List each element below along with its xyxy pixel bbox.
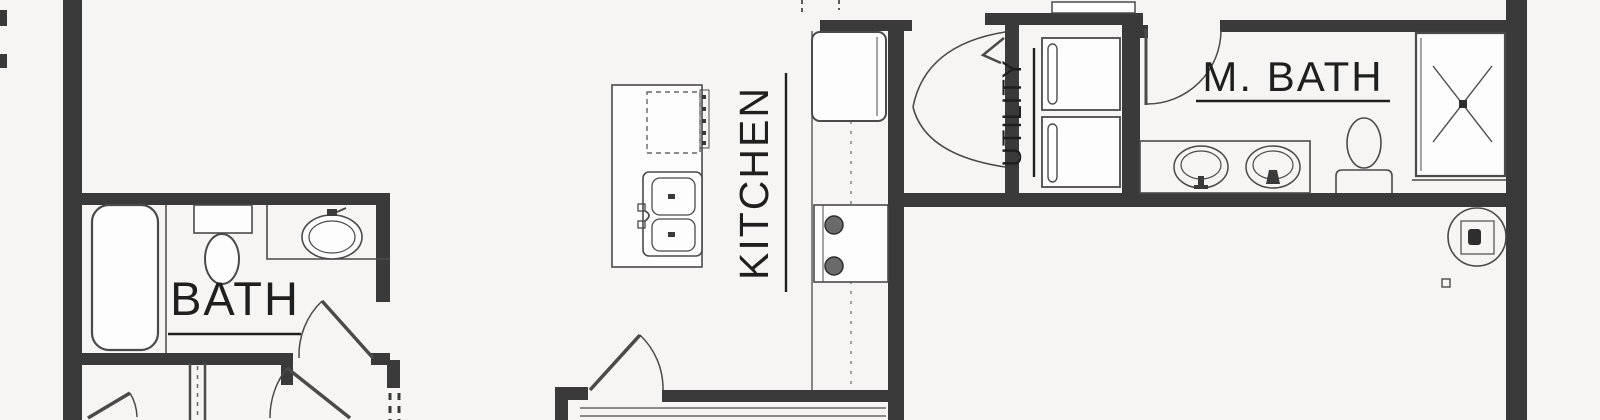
burner-icon: [825, 216, 843, 234]
double-sink: [638, 172, 702, 256]
wall-kitchen-right: [888, 20, 904, 420]
room-label-kitchen: KITCHEN: [734, 73, 780, 293]
wall-left-outer: [63, 0, 82, 420]
bathtub: [92, 205, 158, 350]
utility-fixtures: [1042, 38, 1120, 187]
washer: [1042, 38, 1120, 110]
room-label-mbath: M. BATH: [1193, 56, 1393, 98]
wall-below-bath-right: [387, 360, 400, 388]
wall-bath-top: [82, 193, 390, 205]
wall-utility-right: [1122, 20, 1140, 198]
wall-south-long: [888, 193, 1527, 207]
burner-icon: [825, 257, 843, 275]
wall-bath-bottom: [82, 353, 293, 365]
door-below-bath: [270, 368, 350, 418]
top-edge-dashes: [802, 0, 839, 12]
utility-top-niche: [1052, 2, 1135, 13]
faucet-icon: [327, 209, 337, 216]
refrigerator: [812, 32, 886, 121]
dashed-opening-right: [390, 393, 399, 420]
wall-kitchen-bottom: [662, 390, 888, 402]
wall-bath-right: [376, 193, 390, 302]
door-kitchen-rear: [590, 335, 663, 390]
door-bottom-left: [88, 393, 137, 418]
ceiling-fan-icon: [1448, 208, 1506, 266]
vanity-sink: [267, 205, 390, 259]
double-vanity-sinks: [1140, 141, 1310, 193]
wall-fragment-top-left-2: [0, 54, 7, 68]
shower: [1412, 33, 1506, 180]
faucet-icon: [1266, 170, 1280, 184]
master-toilet: [1336, 118, 1392, 193]
dryer: [1042, 117, 1120, 187]
wall-mbath-top: [1220, 20, 1527, 32]
shower-drain-icon: [1459, 100, 1467, 108]
room-label-utility: UTILITY: [999, 45, 1027, 181]
wall-right-outer: [1506, 0, 1527, 420]
faucet-icon: [1198, 176, 1204, 185]
wall-fragment-top-left-1: [0, 10, 7, 26]
door-double-utility: [913, 32, 1005, 167]
wall-kitchen-bottom-left-return: [555, 398, 568, 420]
range: [814, 205, 888, 282]
rear-steps-lines: [580, 408, 886, 416]
outlet-icon: [1442, 279, 1450, 287]
floor-plan: BATH KITCHEN UTILITY M. BATH: [0, 0, 1600, 420]
room-label-bath: BATH: [160, 275, 310, 322]
cased-opening-below-bath: [190, 363, 205, 420]
bedroom-symbols: [1442, 208, 1506, 287]
wall-kitchen-top-stub: [820, 20, 912, 31]
wall-utility-top: [985, 13, 1143, 25]
door-bath: [299, 301, 373, 358]
